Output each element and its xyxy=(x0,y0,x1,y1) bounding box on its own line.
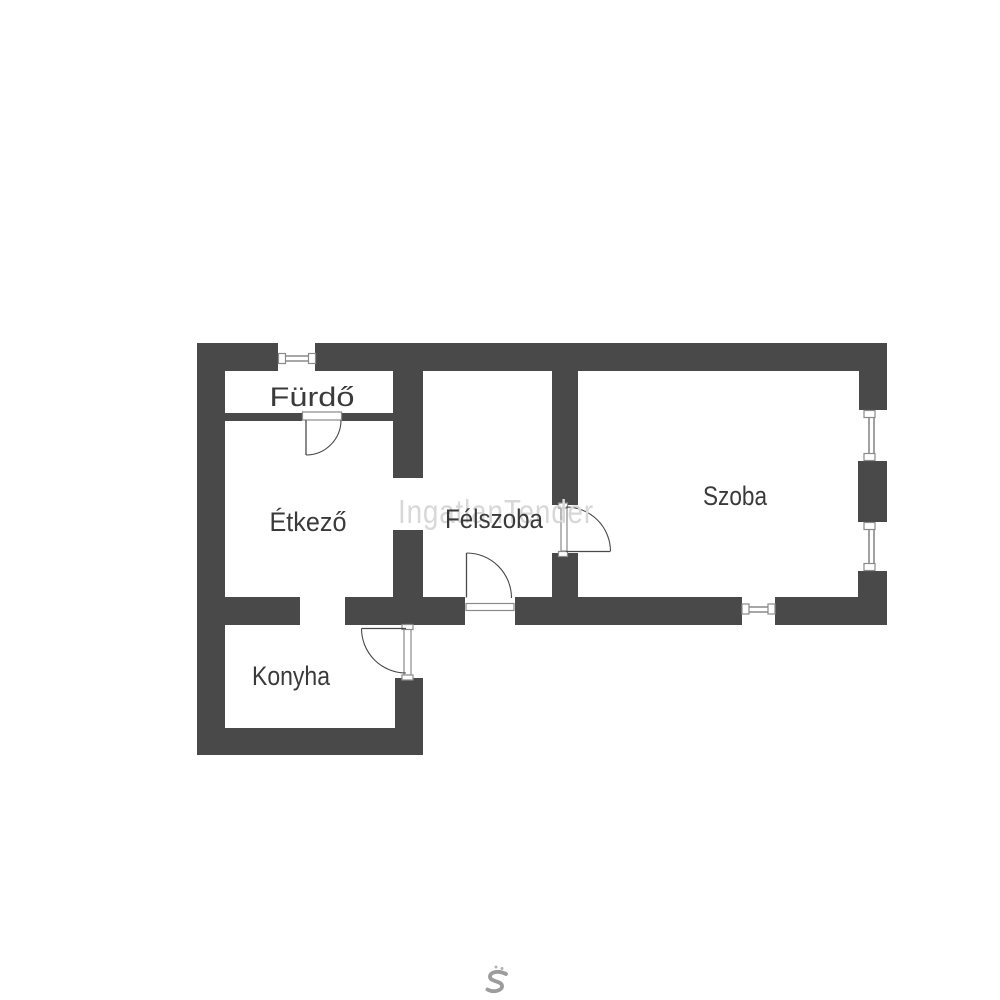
door-jamb-cap xyxy=(559,552,568,557)
wall-south-band-left xyxy=(345,597,465,625)
door-swing-arc xyxy=(467,553,512,598)
wall-right-bottom xyxy=(858,571,887,625)
logo-dot xyxy=(501,967,504,970)
logo-s-mark xyxy=(488,972,507,991)
room-label-furdo: Fürdő xyxy=(270,382,355,412)
window-szoba-right-upper xyxy=(864,411,875,461)
wall-right-top xyxy=(859,343,887,410)
wall-konyha-right xyxy=(395,678,423,755)
floorplan-canvas: IngatlanTender Fürdő Étkező Félszoba Szo… xyxy=(0,0,1000,1000)
wall-furdo-partition-left xyxy=(225,413,302,421)
window-end-cap xyxy=(742,604,749,614)
room-label-konyha: Konyha xyxy=(252,661,331,691)
door-closed-leaf xyxy=(404,627,411,676)
window-end-cap xyxy=(864,411,875,418)
window-szoba-right-lower xyxy=(864,523,875,571)
door-jamb-cap xyxy=(402,675,413,680)
floorplan-svg: IngatlanTender Fürdő Étkező Félszoba Szo… xyxy=(0,0,1000,1000)
room-label-szoba: Szoba xyxy=(703,481,768,511)
door-furdo xyxy=(303,412,342,455)
wall-konyha-top xyxy=(225,597,300,625)
door-swing-arc xyxy=(362,629,407,674)
door-konyha xyxy=(362,625,414,681)
wall-felszoba-szoba-upper xyxy=(552,371,578,505)
window-end-cap xyxy=(864,564,875,571)
wall-south-band-mid xyxy=(515,597,742,625)
logo-dot xyxy=(495,966,498,969)
window-end-cap xyxy=(279,354,286,364)
wall-right-mid xyxy=(858,461,887,522)
wall-top-main xyxy=(315,343,887,371)
door-closed-leaf xyxy=(466,604,514,611)
door-closed-leaf xyxy=(303,412,342,420)
wall-konyha-bottom xyxy=(197,728,423,755)
room-label-etkezo: Étkező xyxy=(270,507,347,537)
door-swing-arc xyxy=(306,420,341,455)
door-entrance-felszoba xyxy=(466,553,514,611)
wall-furdo-partition-right xyxy=(342,413,395,421)
window-end-cap xyxy=(309,354,316,364)
window-top xyxy=(279,354,316,364)
room-label-felszoba: Félszoba xyxy=(445,504,544,534)
window-end-cap xyxy=(864,523,875,530)
wall-etkezo-felszoba-upper xyxy=(393,371,423,478)
window-szoba-bottom xyxy=(742,604,775,614)
window-end-cap xyxy=(864,454,875,461)
window-end-cap xyxy=(768,604,775,614)
ingatlantender-logo-icon xyxy=(488,966,507,992)
wall-felszoba-szoba-lower xyxy=(552,553,578,625)
wall-left xyxy=(197,343,225,755)
